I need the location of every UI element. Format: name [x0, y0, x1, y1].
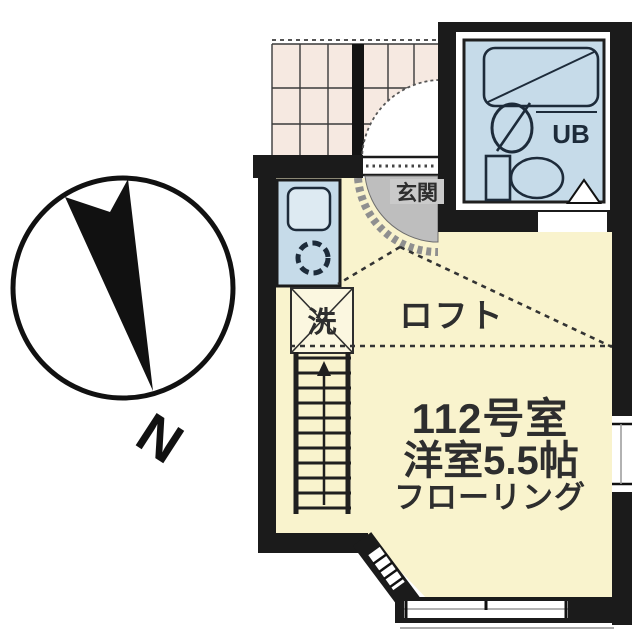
room-size-label: 洋室5.5帖 [403, 439, 579, 483]
right-window [612, 416, 632, 492]
flooring-label: フローリング [394, 480, 586, 515]
entrance-label: 玄関 [396, 181, 438, 205]
floor-plan-canvas: 玄関 UB 洗 ロフト 112号室 洋室5.5帖 フローリング N [0, 0, 640, 640]
bath-door-opening [538, 212, 607, 232]
washing-machine-label: 洗 [307, 306, 336, 339]
unit-bath-label: UB [552, 119, 590, 149]
loft-label: ロフト [400, 297, 505, 334]
room-number-label: 112号室 [412, 395, 569, 442]
unit-bath [438, 22, 632, 232]
kitchen-sink-icon [288, 188, 330, 230]
wall-bottom-left [258, 533, 368, 553]
corridor-partition-wall [352, 44, 364, 158]
kitchen-unit [277, 180, 340, 286]
wall-left [258, 155, 276, 553]
